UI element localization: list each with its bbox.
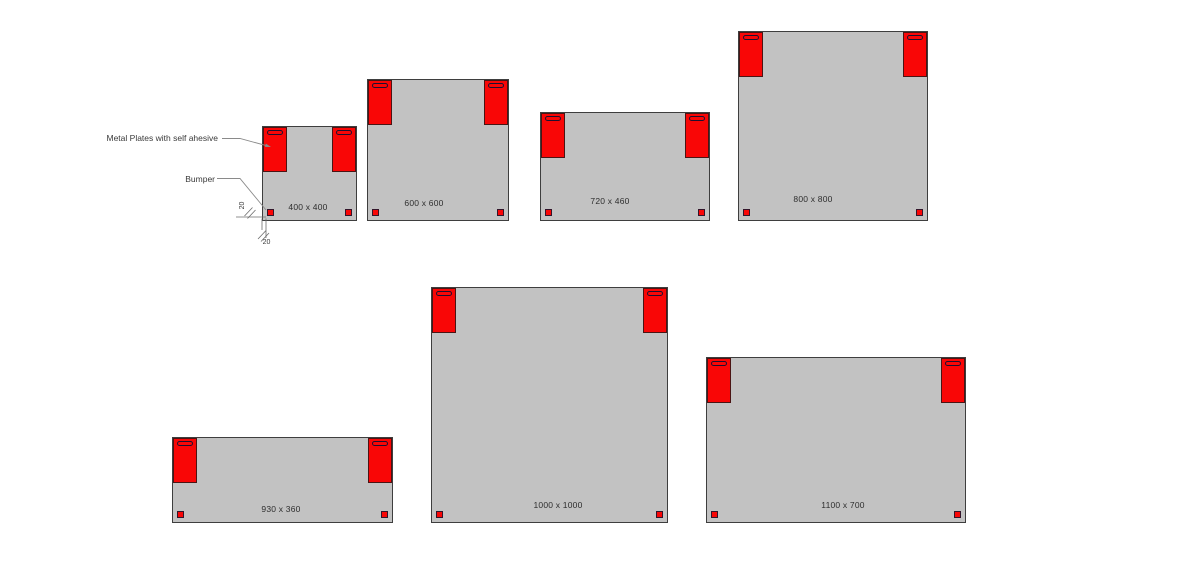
size-label: 800 x 800 — [793, 194, 832, 204]
bumper-icon — [954, 511, 961, 518]
plate-slot-icon — [743, 35, 759, 40]
bumper-icon — [177, 511, 184, 518]
metal-plate-icon — [941, 358, 965, 403]
panel-800x800 — [738, 31, 928, 221]
metal-plate-icon — [685, 113, 709, 158]
plate-slot-icon — [372, 441, 388, 446]
plate-slot-icon — [945, 361, 961, 366]
metal-plate-icon — [432, 288, 456, 333]
plate-slot-icon — [177, 441, 193, 446]
metal-plate-icon — [707, 358, 731, 403]
size-label: 930 x 360 — [261, 504, 300, 514]
metal-plate-icon — [332, 127, 356, 172]
bumper-icon — [436, 511, 443, 518]
dimension-label-horizontal: 20 — [259, 239, 274, 246]
size-label: 720 x 460 — [590, 196, 629, 206]
metal-plate-icon — [541, 113, 565, 158]
bumper-icon — [381, 511, 388, 518]
plate-slot-icon — [545, 116, 561, 121]
bumper-icon — [267, 209, 274, 216]
bumper-icon — [372, 209, 379, 216]
panel-1100x700 — [706, 357, 966, 523]
metal-plate-icon — [484, 80, 508, 125]
bumper-icon — [545, 209, 552, 216]
metal-plate-icon — [173, 438, 197, 483]
metal-plate-icon — [263, 127, 287, 172]
panel-1000x1000 — [431, 287, 668, 523]
metal-plate-icon — [643, 288, 667, 333]
metal-plate-icon — [368, 80, 392, 125]
metal-plate-icon — [739, 32, 763, 77]
plate-slot-icon — [689, 116, 705, 121]
drawing-canvas: 400 x 400 600 x 600 720 x 460 800 x 800 … — [0, 0, 1200, 579]
bumper-annotation: Bumper — [185, 174, 215, 184]
size-label: 1100 x 700 — [821, 500, 864, 510]
plate-slot-icon — [436, 291, 452, 296]
plate-slot-icon — [711, 361, 727, 366]
bumper-icon — [916, 209, 923, 216]
bumper-icon — [743, 209, 750, 216]
plate-slot-icon — [647, 291, 663, 296]
plate-slot-icon — [372, 83, 388, 88]
size-label: 600 x 600 — [404, 198, 443, 208]
size-label: 400 x 400 — [288, 202, 327, 212]
plate-slot-icon — [267, 130, 283, 135]
bumper-icon — [711, 511, 718, 518]
bumper-icon — [656, 511, 663, 518]
size-label: 1000 x 1000 — [534, 500, 583, 510]
plate-slot-icon — [488, 83, 504, 88]
metal-plate-icon — [368, 438, 392, 483]
dimension-label-vertical: 20 — [239, 198, 246, 213]
metal-plates-annotation: Metal Plates with self ahesive — [107, 133, 219, 143]
bumper-icon — [698, 209, 705, 216]
plate-slot-icon — [336, 130, 352, 135]
metal-plate-icon — [903, 32, 927, 77]
bumper-icon — [345, 209, 352, 216]
plate-slot-icon — [907, 35, 923, 40]
bumper-icon — [497, 209, 504, 216]
